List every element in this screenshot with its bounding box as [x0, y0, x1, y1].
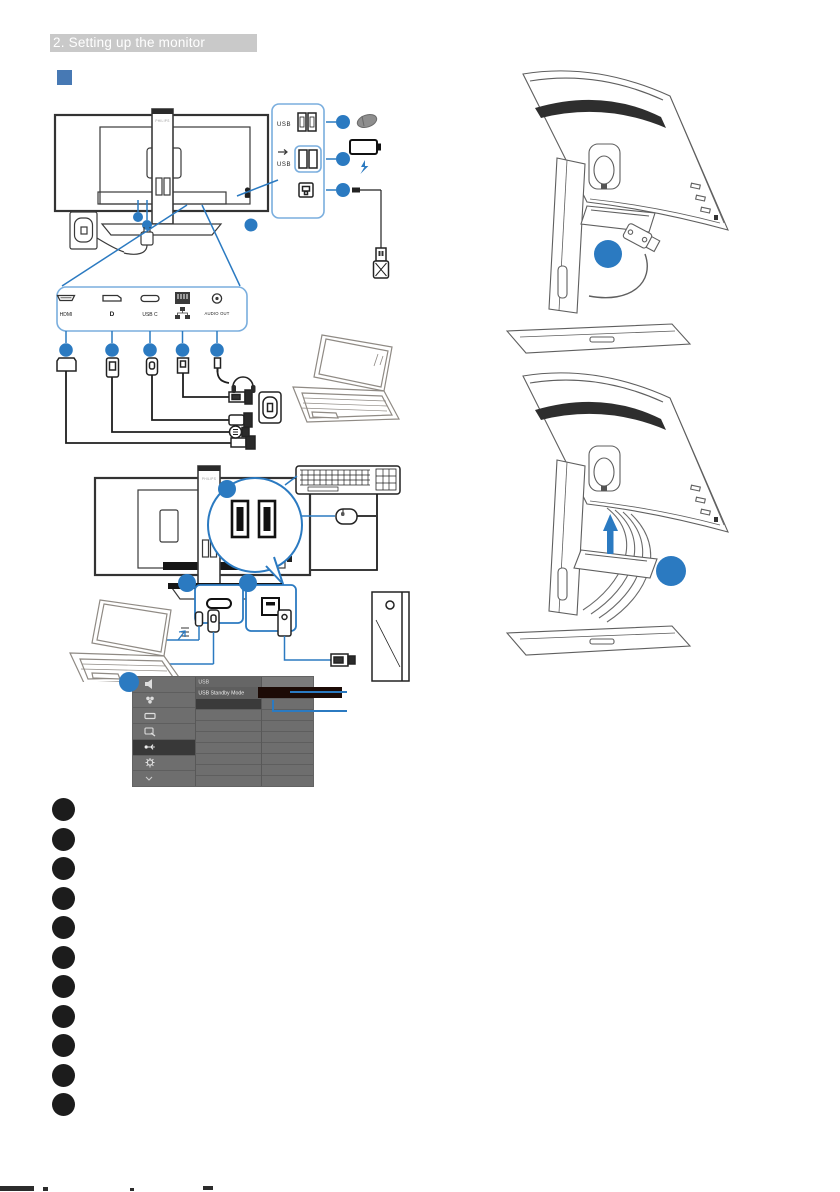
- usb-hub-diagram: PHILIPS: [40, 452, 440, 682]
- desktop-tower-icon: [372, 592, 409, 681]
- page-title: 2. Setting up the monitor: [50, 34, 257, 52]
- usb-a-plug-icon: [331, 654, 355, 666]
- legend-bullet: [52, 857, 75, 880]
- laptop-icon: [293, 335, 399, 422]
- step-dot: [119, 672, 139, 692]
- hdmi-port-icon: [58, 296, 75, 301]
- ethernet-port-icon: [175, 292, 190, 304]
- legend-bullet: [52, 1005, 75, 1028]
- color-icon: [144, 695, 156, 705]
- step-dot: [178, 574, 196, 592]
- input-icon: [144, 711, 156, 721]
- legend-bullet: [52, 828, 75, 851]
- step-dot: [218, 480, 236, 498]
- usb-b-upstream-icon: [299, 183, 313, 197]
- up-arrow-icon: [603, 514, 618, 554]
- osd-item-selected-blank: [196, 699, 261, 710]
- osd-pointer-line: [290, 691, 347, 693]
- usb-cable-plug-icon: [352, 188, 389, 279]
- hdmi-label: HDMI: [60, 312, 73, 318]
- legend-bullet: [52, 798, 75, 821]
- legend-bullet: [52, 946, 75, 969]
- osd-pointer-line: [272, 710, 347, 712]
- usbc-port-icon: [207, 599, 231, 608]
- rear-connection-diagram: PHILIPS USB USB: [40, 88, 420, 472]
- section-marker: [57, 70, 72, 85]
- osd-submenu-column: USB USB Standby Mode: [196, 677, 262, 786]
- clipped-text-fragment: [130, 1188, 134, 1191]
- legend-bullet: [52, 887, 75, 910]
- osd-sidebar: [133, 677, 196, 786]
- speaker-icon: [144, 679, 156, 689]
- legend-bullet: [52, 916, 75, 939]
- step-dot: [336, 152, 350, 166]
- osd-usb-item: [133, 740, 195, 756]
- legend-bullet: [52, 975, 75, 998]
- usb-b-port-icon: [262, 598, 279, 615]
- brand-wordmark: PHILIPS: [155, 119, 169, 123]
- headphones-icon: [232, 377, 256, 393]
- setup-gear-icon: [144, 757, 156, 768]
- clipped-text-fragment: [43, 1187, 48, 1191]
- audio-cable: [215, 358, 256, 393]
- brand-wordmark: PHILIPS: [202, 477, 216, 481]
- connector-strip-callout: HDMI D USB C AUDIO OUT: [57, 287, 247, 331]
- osd-setup-item: [133, 756, 195, 772]
- step-dot: [133, 212, 143, 222]
- step-dot: [245, 219, 258, 232]
- usb-fast-charge-label: USB: [277, 162, 291, 168]
- step-dot: [239, 574, 257, 592]
- displayport-port-icon: [103, 296, 121, 302]
- laptop-icon: [70, 600, 181, 682]
- audio-out-label: AUDIO OUT: [204, 311, 229, 316]
- connector-step-dots: [59, 331, 224, 357]
- osd-input-item: [133, 708, 195, 724]
- step-1-dot: [594, 240, 622, 268]
- keyboard-icon: [296, 466, 400, 494]
- osd-more-item: [133, 771, 195, 786]
- displayport-label: D: [110, 311, 115, 318]
- usb-icon: [144, 742, 156, 752]
- clipped-text-fragment: [203, 1186, 213, 1190]
- legend-bullet: [52, 1064, 75, 1087]
- osd-item-usb-standby: USB Standby Mode: [196, 688, 261, 699]
- audio-out-port-icon: [212, 294, 221, 303]
- cable-management-illustration: [495, 362, 795, 664]
- usbc-port-icon: [141, 296, 159, 302]
- mouse-icon: [336, 509, 357, 524]
- step-2-dot: [656, 556, 686, 586]
- legend-bullets: [52, 798, 75, 1116]
- step-dot: [336, 183, 350, 197]
- osd-color-item: [133, 693, 195, 709]
- arrow-down-icon: [144, 776, 154, 782]
- mouse-icon: [356, 112, 379, 130]
- fast-charge-glyph-icon: [178, 628, 189, 640]
- usbc-plug-icon: [196, 612, 203, 626]
- picture-icon: [144, 727, 156, 737]
- osd-speaker-item: [133, 677, 195, 693]
- osd-picture-item: [133, 724, 195, 740]
- battery-charging-icon: [350, 140, 381, 174]
- legend-bullet: [52, 1034, 75, 1057]
- usbc-label: USB C: [142, 312, 158, 318]
- step-dot: [336, 115, 350, 129]
- osd-item-usb: USB: [196, 677, 261, 688]
- cable-connect-illustration: [495, 60, 785, 360]
- usb-b-plug-icon: [278, 610, 291, 636]
- usbc-big-plug-icon: [208, 610, 219, 632]
- legend-bullet: [52, 1093, 75, 1116]
- wall-outlet-icon: [259, 392, 281, 423]
- monitor-perspective-sketch: [507, 373, 728, 655]
- clipped-text-fragment: [0, 1186, 34, 1191]
- usb-ports-label: USB: [277, 122, 291, 128]
